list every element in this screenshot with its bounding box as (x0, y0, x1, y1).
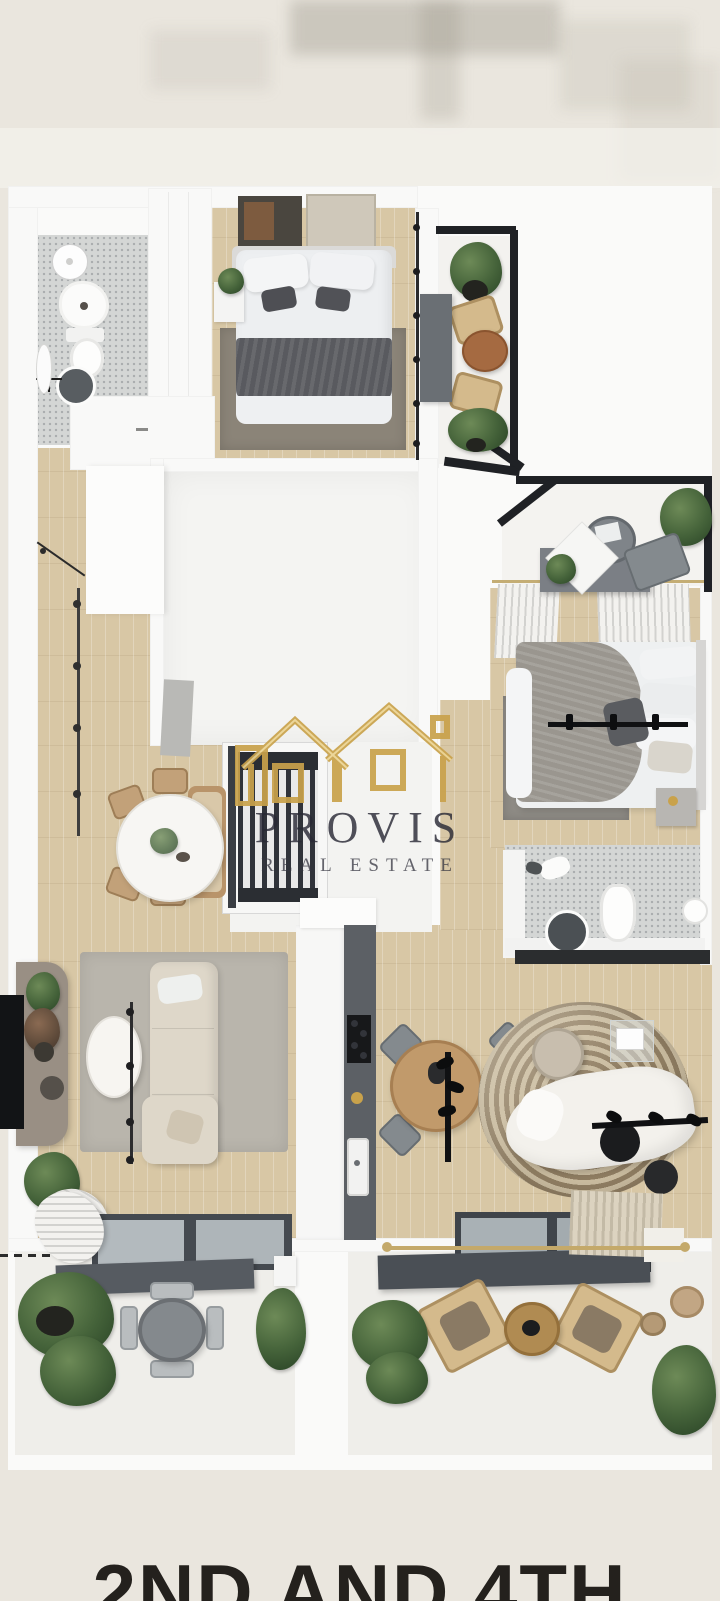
bath2-dark-shelf (515, 950, 710, 964)
nightstand-plant (218, 268, 244, 294)
balcony-3-door-glass (98, 1220, 184, 1264)
gold-houses-logo (235, 688, 485, 806)
curtain-ring (413, 312, 420, 319)
balcony-1-railing-top (436, 226, 516, 234)
pouf (532, 1028, 584, 1080)
bath2-lamp (682, 898, 708, 924)
sink-faucet (354, 1160, 360, 1166)
dining-chair (152, 768, 188, 794)
balcony-3-pedestal (274, 1256, 296, 1286)
wardrobe-door-seam (188, 192, 189, 406)
accent-pillow-beige (647, 740, 694, 774)
console-bowl (34, 1042, 54, 1062)
curtain-ring (413, 400, 420, 407)
black-side-table (644, 1160, 678, 1194)
round-table-brown (462, 330, 508, 372)
watermark-tagline: REAL ESTATE (261, 856, 459, 875)
cooktop-burner (360, 1030, 367, 1037)
sofa-seam (152, 1094, 214, 1095)
wardrobe-divider (148, 188, 212, 410)
balcony-4-gold-rod (388, 1246, 684, 1250)
table-dish (176, 852, 190, 862)
cooktop-burner (351, 1042, 358, 1049)
balcony-2-small-plant (546, 554, 576, 584)
kitchen-round-table (390, 1040, 482, 1132)
dresser-handle (136, 428, 148, 431)
nightstand-lamp-gold (668, 796, 678, 806)
floorplan-render: PROVIS REAL ESTATE 2ND AND 4TH (0, 0, 720, 1601)
balcony-4-pot-tan (670, 1286, 704, 1318)
kitchen-gold-bowl (351, 1092, 363, 1104)
bed-1-throw (236, 338, 392, 400)
rail-dot (73, 662, 81, 670)
pillow (639, 682, 699, 716)
balcony-1-railing-right (510, 230, 518, 470)
wall-media-unit (420, 294, 452, 402)
hall-wardrobe-block (86, 466, 164, 614)
bath2-sink (545, 910, 589, 954)
faded-photo-light-band (0, 128, 720, 188)
balcony-3-pot (36, 1306, 74, 1336)
balcony-3-table (138, 1298, 206, 1362)
console-bowl (40, 1076, 64, 1100)
round-basin (56, 366, 96, 406)
balcony-3-chair (150, 1360, 194, 1378)
pillow (242, 253, 309, 294)
hall-curtain-rail (77, 588, 80, 836)
bed2-nightstand (656, 788, 696, 826)
rail-dot (73, 724, 81, 732)
door-swing-dot (40, 548, 46, 554)
console-plant (26, 972, 60, 1012)
cooktop-burner (360, 1052, 367, 1059)
kitchen-sink (347, 1138, 369, 1196)
central-room-top-wall (150, 458, 432, 472)
sofa-seam (152, 1028, 214, 1029)
faded-photo-shape (420, 0, 460, 120)
bed-1-foot-fold (236, 396, 392, 424)
balcony-4-basket (640, 1312, 666, 1336)
pillow (309, 251, 376, 290)
watermark-brand: PROVIS (255, 806, 466, 850)
curtain-ring (413, 440, 420, 447)
caption-text: 2ND AND 4TH (0, 1553, 720, 1601)
bed2-headboard (696, 640, 706, 810)
wall-tv (0, 995, 24, 1129)
gold-rod-finial (680, 1242, 690, 1252)
faded-photo-shape (150, 30, 270, 90)
balcony-1-pot (466, 438, 486, 452)
balcony-4-plant-right (652, 1345, 716, 1435)
shower-head-center (66, 258, 73, 265)
balcony-3-chair (120, 1306, 138, 1350)
balcony-4-plant-left (366, 1352, 428, 1404)
lamp-dot (126, 1062, 134, 1070)
bath2-toilet (600, 884, 636, 942)
balcony-3-door-glass (196, 1220, 284, 1264)
lamp-dot (126, 1008, 134, 1016)
table-centerpiece (150, 828, 178, 854)
flower-sink-drain (80, 302, 88, 310)
coffee-table-oval (86, 1016, 142, 1098)
kitchen-cabinet-white (296, 925, 346, 1240)
curtain-rail (416, 212, 419, 460)
watermark: PROVIS REAL ESTATE (205, 688, 515, 875)
balcony-4-curtain-white (644, 1228, 684, 1262)
book-on-table (616, 1028, 644, 1050)
curtain-ring (413, 268, 420, 275)
rod-hook (566, 714, 573, 730)
mirror-oval (36, 344, 52, 394)
accent-pillow-dark (315, 286, 352, 313)
balcony-3-plant-right (256, 1288, 306, 1370)
balcony-3-chair (206, 1306, 224, 1350)
rod-hook (652, 714, 659, 730)
balcony-4-table-dish (522, 1320, 540, 1336)
caption-wrap: 2ND AND 4TH (0, 1553, 720, 1601)
curtain-ring (413, 224, 420, 231)
artwork-inner (244, 202, 274, 240)
rod-hook (610, 714, 617, 730)
rail-dot (73, 600, 81, 608)
central-room-door (160, 679, 194, 756)
lamp-dot (126, 1118, 134, 1126)
rail-dot (73, 790, 81, 798)
artwork-frame-light (306, 194, 376, 250)
gold-rod-finial (382, 1242, 392, 1252)
lamp-dot (126, 1156, 134, 1164)
curtain-ring (413, 356, 420, 363)
pillow (639, 646, 699, 681)
wardrobe-door-seam (168, 192, 169, 406)
balcony-3-palm (40, 1336, 116, 1406)
cooktop-burner (351, 1020, 358, 1027)
kitchen-island-white (300, 898, 376, 928)
floor-lamp-rod (130, 1002, 133, 1164)
